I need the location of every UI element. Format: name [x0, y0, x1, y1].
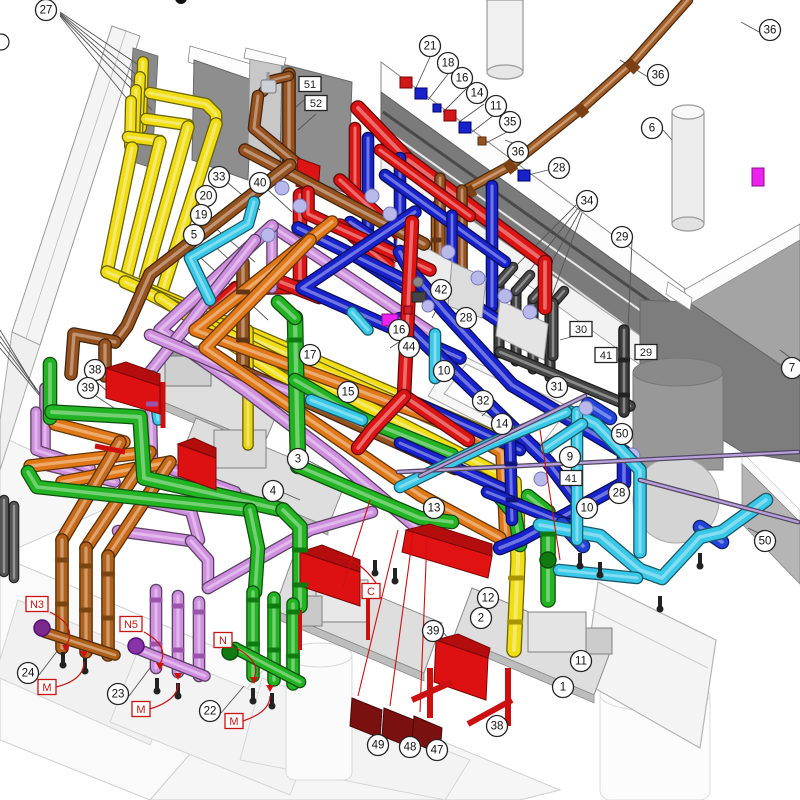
svg-text:3: 3	[295, 454, 301, 466]
svg-text:14: 14	[471, 88, 484, 100]
svg-text:18: 18	[442, 58, 455, 70]
svg-text:M: M	[136, 704, 145, 716]
svg-text:35: 35	[504, 117, 517, 129]
svg-text:39: 39	[427, 626, 440, 638]
svg-text:16: 16	[393, 325, 406, 337]
svg-text:N: N	[219, 635, 227, 647]
svg-text:34: 34	[581, 196, 594, 208]
svg-text:M: M	[42, 682, 51, 694]
svg-text:41: 41	[565, 473, 577, 485]
svg-text:41: 41	[600, 350, 612, 362]
svg-text:11: 11	[490, 101, 502, 113]
svg-text:28: 28	[553, 163, 566, 175]
svg-text:10: 10	[438, 366, 451, 378]
svg-text:5: 5	[191, 230, 197, 242]
svg-text:36: 36	[512, 147, 525, 159]
svg-text:23: 23	[112, 689, 125, 701]
svg-text:20: 20	[200, 191, 213, 203]
svg-text:50: 50	[759, 536, 772, 548]
svg-text:40: 40	[254, 178, 267, 190]
svg-text:42: 42	[435, 285, 448, 297]
svg-text:28: 28	[613, 488, 626, 500]
svg-text:N3: N3	[30, 599, 44, 611]
svg-text:29: 29	[616, 232, 629, 244]
svg-text:38: 38	[89, 365, 102, 377]
svg-text:13: 13	[428, 503, 441, 515]
svg-text:39: 39	[82, 383, 95, 395]
svg-text:38: 38	[491, 721, 504, 733]
svg-text:17: 17	[304, 350, 317, 362]
svg-text:4: 4	[270, 486, 277, 498]
svg-text:9: 9	[567, 452, 573, 464]
svg-text:21: 21	[424, 41, 437, 53]
svg-text:16: 16	[456, 73, 469, 85]
svg-text:30: 30	[575, 324, 587, 336]
svg-text:33: 33	[213, 172, 226, 184]
svg-text:50: 50	[616, 429, 629, 441]
svg-text:36: 36	[764, 25, 777, 37]
svg-text:6: 6	[649, 123, 655, 135]
svg-text:2: 2	[478, 613, 484, 625]
svg-text:14: 14	[496, 419, 509, 431]
svg-text:51: 51	[304, 79, 316, 91]
svg-text:10: 10	[581, 503, 594, 515]
svg-text:M: M	[229, 716, 238, 728]
svg-text:28: 28	[460, 313, 473, 325]
svg-text:36: 36	[652, 70, 665, 82]
svg-text:C: C	[367, 586, 375, 598]
svg-text:32: 32	[477, 396, 490, 408]
svg-text:27: 27	[40, 5, 53, 17]
svg-text:19: 19	[195, 210, 208, 222]
svg-text:22: 22	[204, 706, 217, 718]
svg-text:52: 52	[310, 98, 322, 110]
svg-text:31: 31	[551, 382, 564, 394]
svg-text:7: 7	[789, 363, 795, 375]
svg-text:49: 49	[372, 740, 385, 752]
svg-text:48: 48	[404, 742, 417, 754]
svg-text:29: 29	[640, 347, 652, 359]
svg-text:44: 44	[403, 342, 416, 354]
svg-text:N5: N5	[124, 619, 138, 631]
svg-text:1: 1	[560, 682, 566, 694]
svg-text:24: 24	[22, 668, 35, 680]
svg-text:15: 15	[342, 387, 355, 399]
svg-text:11: 11	[575, 656, 587, 668]
svg-text:47: 47	[431, 745, 444, 757]
svg-text:12: 12	[482, 593, 495, 605]
